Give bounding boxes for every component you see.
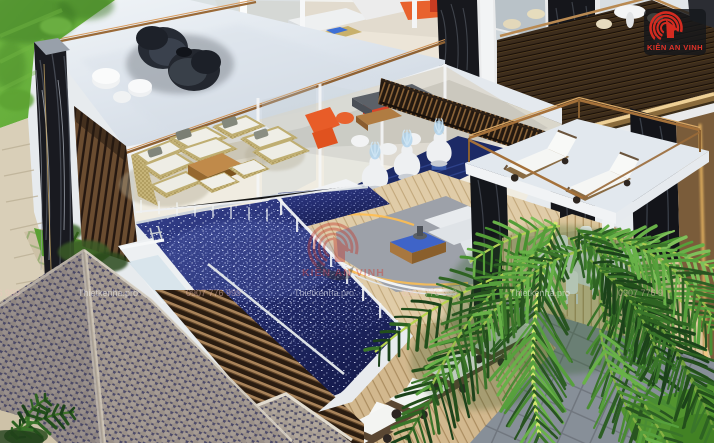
svg-text:Thietkenha.pro: Thietkenha.pro [510, 288, 570, 298]
svg-text:KIÊN AN VINH: KIÊN AN VINH [302, 266, 385, 279]
svg-text:907 776 999: 907 776 999 [0, 288, 20, 298]
svg-text:KIÊN AN VINH: KIÊN AN VINH [647, 43, 703, 52]
svg-text:0907 776 999: 0907 776 999 [402, 288, 457, 298]
svg-text:0907 776 999: 0907 776 999 [186, 288, 241, 298]
svg-text:0907 776 9: 0907 776 9 [618, 288, 663, 298]
svg-text:Thietkenha.pro: Thietkenha.pro [78, 288, 138, 298]
svg-text:Thietkenha.pro: Thietkenha.pro [294, 288, 354, 298]
